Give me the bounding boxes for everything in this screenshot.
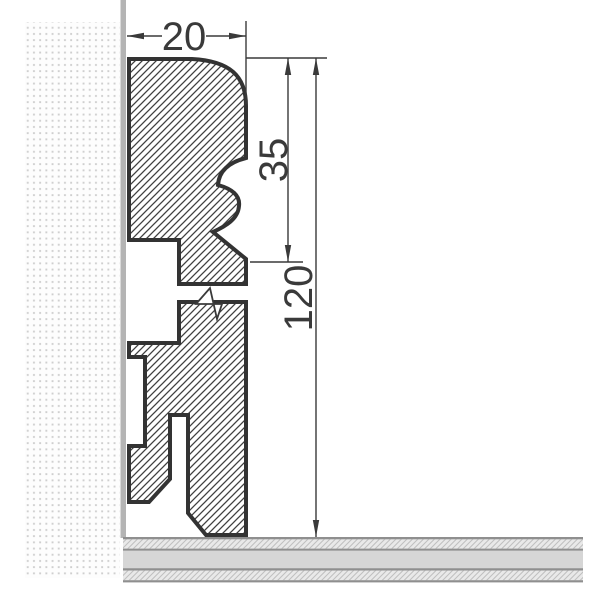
dimension-total-height-label: 120 xyxy=(277,265,321,332)
floor-top-border xyxy=(123,537,583,539)
arrowhead-down-icon xyxy=(313,520,319,537)
arrowhead-down-icon xyxy=(285,245,291,262)
profile-lower-section xyxy=(129,302,246,535)
wall xyxy=(25,0,126,578)
arrowhead-left-icon xyxy=(127,33,144,39)
floor-core-layer xyxy=(123,551,583,568)
profile-upper-section xyxy=(129,59,246,284)
technical-drawing-page: 20 35 120 xyxy=(0,0,604,604)
wall-stipple-texture xyxy=(25,22,120,578)
floor-upper-screed xyxy=(123,539,583,548)
floor-border-line xyxy=(123,568,583,570)
dimension-upper-height-label: 35 xyxy=(252,138,296,183)
arrowhead-up-icon xyxy=(313,58,319,75)
floor xyxy=(123,537,583,582)
dimension-width-label: 20 xyxy=(162,15,207,59)
floor-lower-screed xyxy=(123,571,583,581)
arrowhead-up-icon xyxy=(285,58,291,75)
floor-border-line xyxy=(123,549,583,551)
floor-bottom-border xyxy=(123,580,583,582)
skirting-profile xyxy=(129,59,246,535)
technical-drawing-canvas: 20 35 120 xyxy=(0,0,604,604)
arrowhead-right-icon xyxy=(229,33,246,39)
wall-face-line xyxy=(121,0,127,538)
